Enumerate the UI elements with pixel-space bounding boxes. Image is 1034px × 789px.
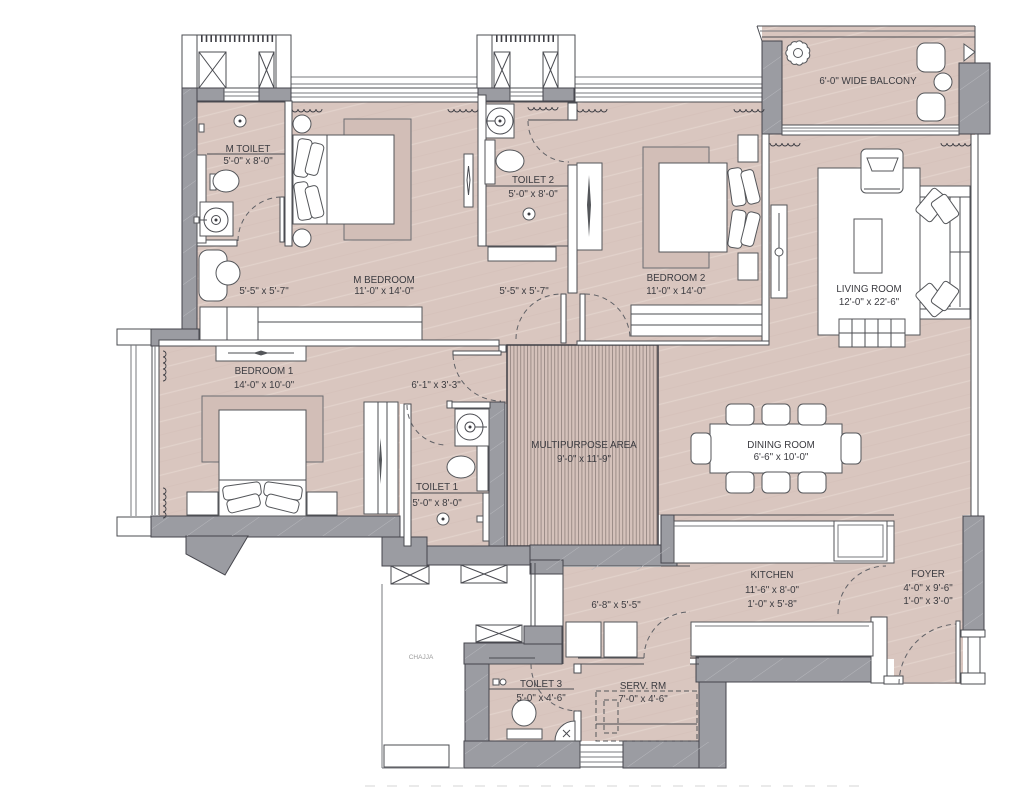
svg-text:5'-0" x 4'-6": 5'-0" x 4'-6" xyxy=(516,693,566,704)
svg-text:5'-0" x 8'-0": 5'-0" x 8'-0" xyxy=(508,189,558,200)
svg-text:9'-0" x 11'-9": 9'-0" x 11'-9" xyxy=(557,454,612,465)
svg-text:5'-0" x 8'-0": 5'-0" x 8'-0" xyxy=(223,156,273,167)
svg-text:KITCHEN: KITCHEN xyxy=(750,570,793,581)
svg-text:11'-0" x 14'-0": 11'-0" x 14'-0" xyxy=(646,286,706,297)
svg-text:11'-0" x 14'-0": 11'-0" x 14'-0" xyxy=(354,286,414,297)
svg-text:5'-0" x 8'-0": 5'-0" x 8'-0" xyxy=(412,498,462,509)
svg-text:6'-1" x 3'-3": 6'-1" x 3'-3" xyxy=(411,380,461,391)
svg-text:5'-5" x 5'-7": 5'-5" x 5'-7" xyxy=(239,286,289,297)
svg-text:MULTIPURPOSE AREA: MULTIPURPOSE AREA xyxy=(531,440,637,451)
svg-text:DINING ROOM: DINING ROOM xyxy=(747,440,815,451)
svg-text:6'-0" WIDE BALCONY: 6'-0" WIDE BALCONY xyxy=(819,76,917,87)
svg-text:14'-0" x 10'-0": 14'-0" x 10'-0" xyxy=(234,380,295,391)
svg-text:LIVING ROOM: LIVING ROOM xyxy=(836,284,901,295)
svg-text:BEDROOM 2: BEDROOM 2 xyxy=(647,273,706,284)
svg-text:11'-6" x 8'-0": 11'-6" x 8'-0" xyxy=(745,585,800,596)
svg-text:6'-6" x 10'-0": 6'-6" x 10'-0" xyxy=(754,452,809,463)
svg-text:1'-0" x 3'-0": 1'-0" x 3'-0" xyxy=(903,596,953,607)
svg-text:SERV. RM: SERV. RM xyxy=(620,681,666,692)
svg-text:1'-0" x 5'-8": 1'-0" x 5'-8" xyxy=(747,599,797,610)
svg-text:M BEDROOM: M BEDROOM xyxy=(353,275,415,286)
svg-text:6'-8" x 5'-5": 6'-8" x 5'-5" xyxy=(591,600,641,611)
svg-text:FOYER: FOYER xyxy=(911,569,945,580)
svg-text:12'-0" x 22'-6": 12'-0" x 22'-6" xyxy=(839,297,900,308)
svg-text:TOILET 2: TOILET 2 xyxy=(512,175,554,186)
svg-text:CHAJJA: CHAJJA xyxy=(409,654,434,661)
svg-text:TOILET 3: TOILET 3 xyxy=(520,679,563,690)
svg-text:7'-0" x 4'-6": 7'-0" x 4'-6" xyxy=(618,694,668,705)
svg-text:5'-5" x 5'-7": 5'-5" x 5'-7" xyxy=(499,286,549,297)
svg-text:4'-0" x 9'-6": 4'-0" x 9'-6" xyxy=(903,583,953,594)
svg-text:M TOILET: M TOILET xyxy=(226,144,271,155)
svg-text:BEDROOM 1: BEDROOM 1 xyxy=(235,366,294,377)
svg-text:TOILET 1: TOILET 1 xyxy=(416,482,458,493)
